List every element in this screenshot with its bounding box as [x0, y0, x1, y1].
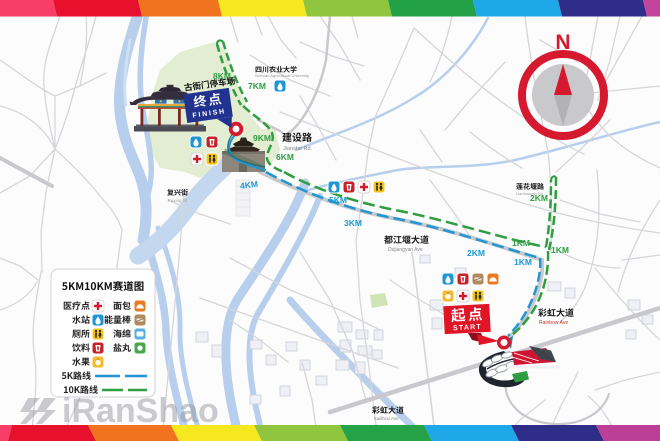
- svg-text:Fuxing St: Fuxing St: [168, 198, 188, 203]
- svg-text:3KM: 3KM: [344, 218, 362, 228]
- svg-text:7KM: 7KM: [248, 81, 266, 91]
- svg-text:Jianshe Rd.: Jianshe Rd.: [283, 146, 313, 152]
- svg-text:1KM: 1KM: [514, 257, 532, 267]
- svg-text:2KM: 2KM: [467, 248, 485, 258]
- svg-text:iRanShao: iRanShao: [62, 392, 219, 430]
- svg-text:6KM: 6KM: [276, 152, 294, 162]
- svg-text:1KM: 1KM: [512, 238, 530, 248]
- svg-text:5KM: 5KM: [329, 195, 347, 205]
- svg-text:Kailihou Ave: Kailihou Ave: [374, 416, 399, 421]
- svg-text:Dujiangyan Ave: Dujiangyan Ave: [388, 247, 423, 253]
- svg-text:Rainbow Ave: Rainbow Ave: [539, 320, 568, 326]
- svg-text:9KM: 9KM: [253, 133, 271, 143]
- svg-text:Sichuan Agricultural Universit: Sichuan Agricultural University: [255, 73, 309, 78]
- svg-text:1KM: 1KM: [551, 245, 569, 255]
- svg-text:Lianhuayan Rd: Lianhuayan Rd: [516, 191, 543, 196]
